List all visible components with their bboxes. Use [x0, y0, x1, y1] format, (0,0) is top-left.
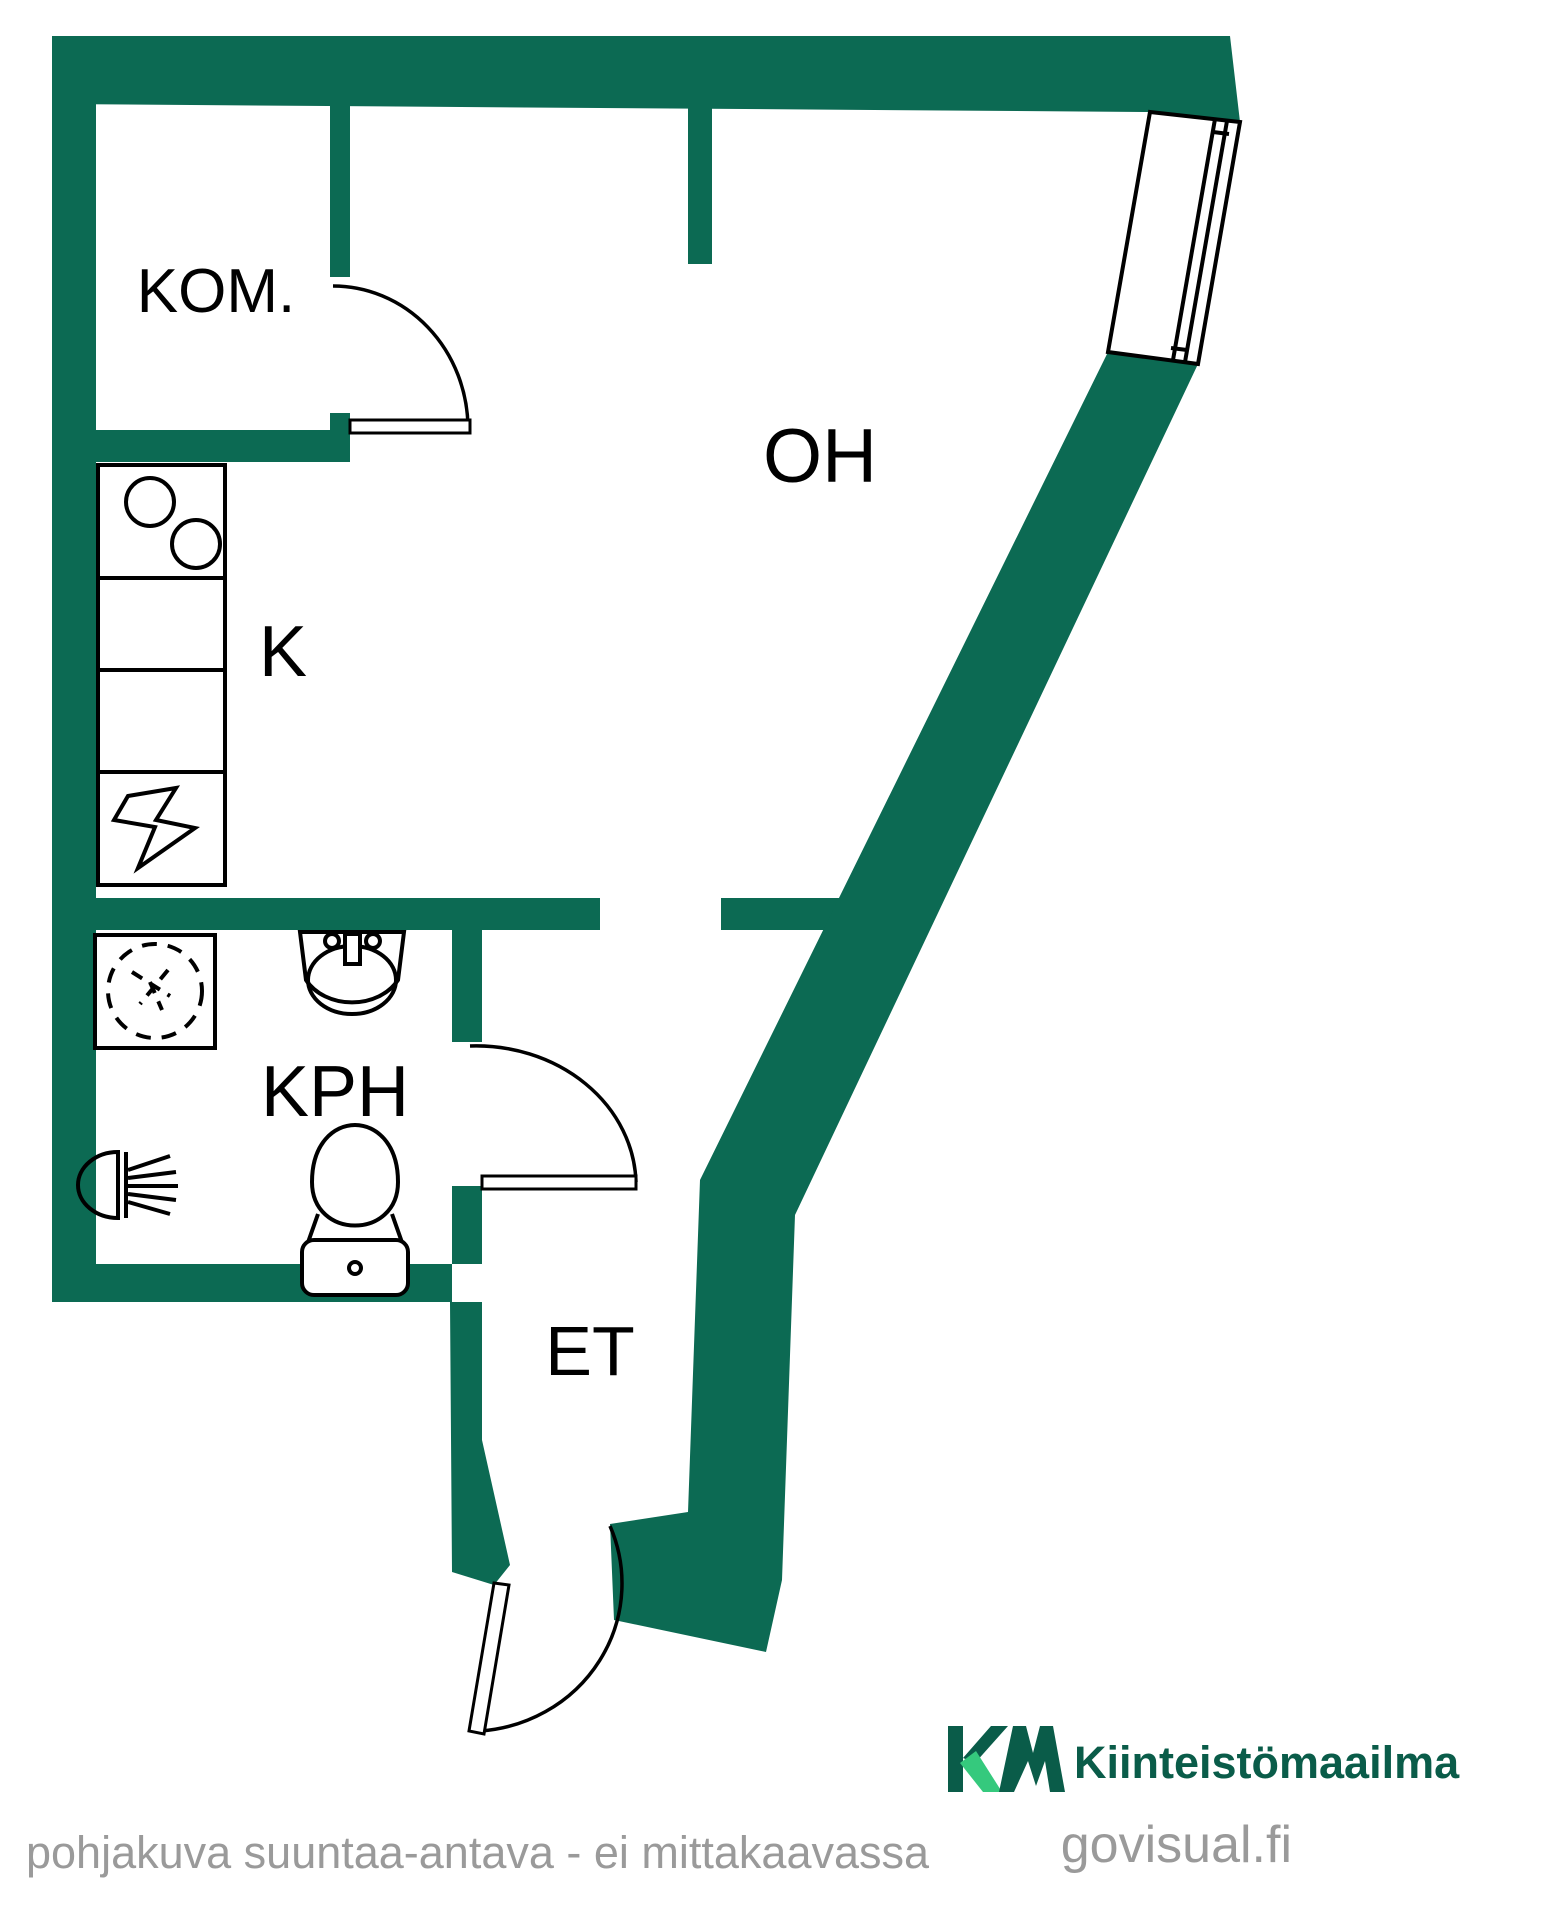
room-label-kom: KOM. [137, 257, 295, 326]
floorplan-page: KOM. OH K KPH ET Kiinteistömaailma govis… [0, 0, 1558, 1920]
kom-door [333, 286, 470, 433]
watermark: govisual.fi [1061, 1816, 1292, 1874]
disclaimer-text: pohjakuva suuntaa-antava - ei mittakaava… [26, 1827, 930, 1878]
window-glass-connector-bottom [1171, 348, 1187, 350]
window-glass-connector-top [1213, 132, 1229, 134]
room-label-et: ET [545, 1312, 634, 1390]
kom-door-arc-icon [333, 286, 468, 427]
wall-divider-left [96, 898, 600, 930]
wall-kom-right [330, 104, 350, 277]
wall-et-left [450, 1302, 510, 1585]
km-logo-m [999, 1726, 1065, 1792]
kitchen-fixtures [98, 465, 225, 885]
toilet-icon [302, 1125, 408, 1295]
wall-kom-door-jamb [330, 413, 350, 443]
kom-door-leaf [350, 420, 470, 433]
kph-door-arc-icon [470, 1046, 636, 1182]
floorplan-canvas: KOM. OH K KPH ET Kiinteistömaailma govis… [0, 0, 1558, 1920]
wall-kom-bottom [96, 430, 350, 462]
lamp-rays [128, 1156, 178, 1214]
wall-top [52, 36, 1240, 122]
toilet-tank [302, 1240, 408, 1295]
wall-pillar [688, 104, 712, 264]
sink-icon [300, 932, 404, 1014]
kph-door [470, 1046, 636, 1189]
sink-faucet [345, 934, 360, 964]
km-logo-k-stem [948, 1726, 963, 1792]
wall-kph-right-lower [452, 1186, 482, 1264]
kitchen-cabinet [98, 670, 225, 772]
entry-door-leaf [469, 1583, 509, 1734]
wall-kph-right-upper [452, 930, 482, 1042]
wall-diagonal-right [610, 352, 1198, 1652]
room-label-kph: KPH [261, 1052, 409, 1132]
km-logo-icon [948, 1726, 1065, 1792]
window [1108, 112, 1240, 364]
room-label-k: K [259, 612, 307, 692]
toilet-bowl [312, 1125, 398, 1226]
kph-door-leaf [482, 1176, 636, 1189]
kitchen-cabinet [98, 578, 225, 670]
room-label-oh: OH [763, 414, 877, 499]
brand-name: Kiinteistömaailma [1074, 1737, 1460, 1788]
